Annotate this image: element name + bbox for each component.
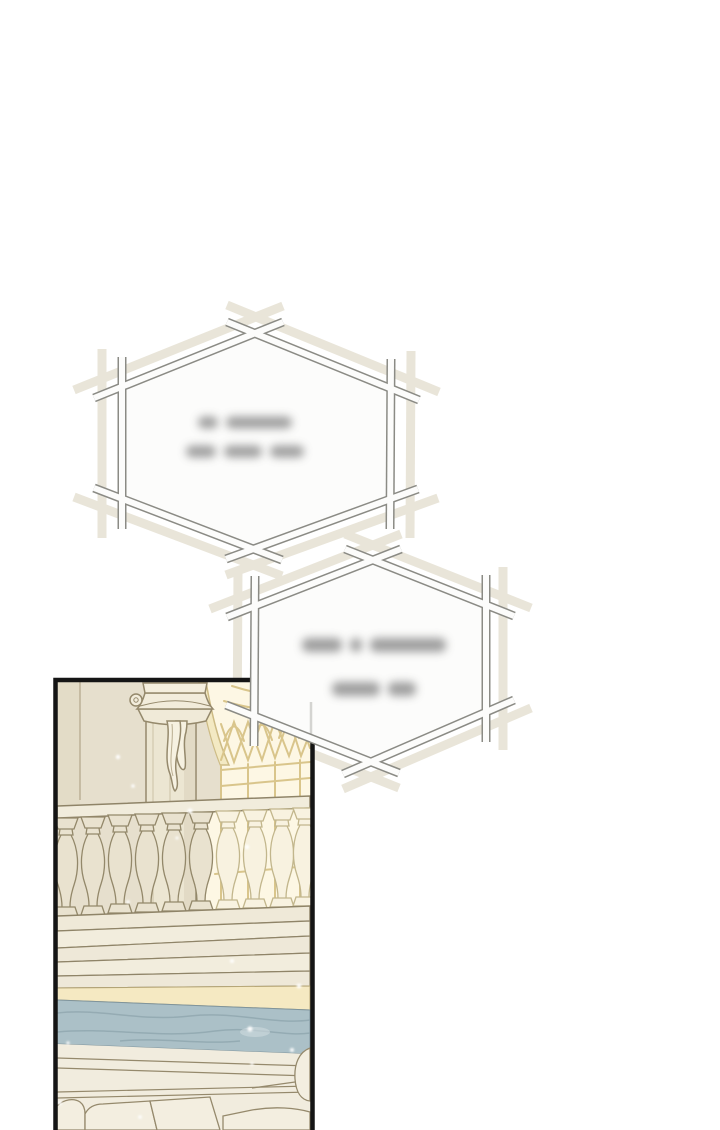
comic-panel [54, 680, 317, 1130]
wall-corner-sliver [57, 682, 80, 806]
balustrade [54, 796, 317, 931]
comic-artwork [0, 0, 720, 1130]
stone-ledge [57, 921, 310, 988]
webtoon-page [0, 0, 720, 1130]
